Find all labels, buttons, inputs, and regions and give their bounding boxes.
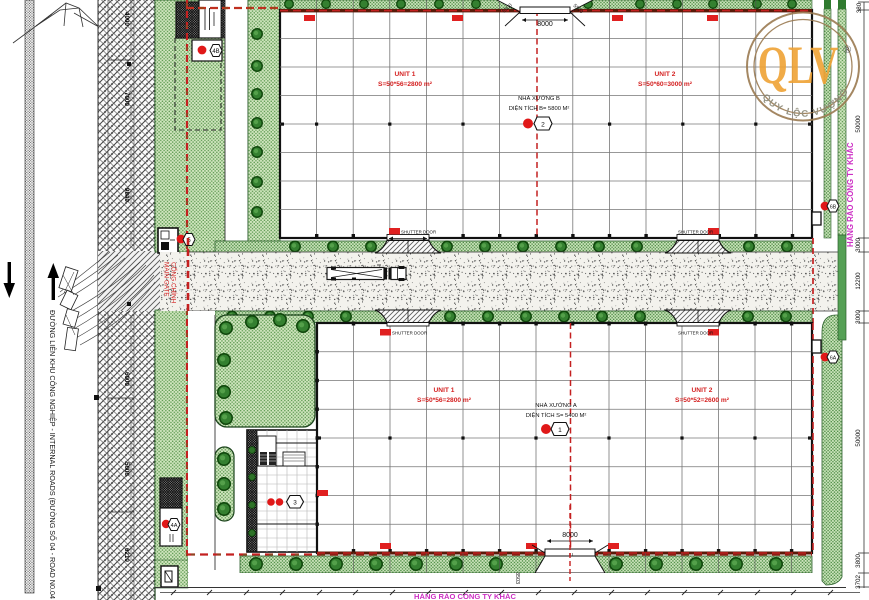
svg-text:50000: 50000 [855,429,862,447]
svg-text:4B: 4B [212,49,219,55]
svg-text:UNIT 1: UNIT 1 [395,71,416,78]
svg-text:HÀNG RÀO CÔNG TY KHÁC: HÀNG RÀO CÔNG TY KHÁC [846,142,855,247]
svg-text:®: ® [843,44,851,56]
svg-text:MAIN GATE: MAIN GATE [163,262,170,297]
svg-text:SHUTTER DOOR: SHUTTER DOOR [678,331,713,336]
svg-text:HÀNG RÀO CÔNG TY KHÁC: HÀNG RÀO CÔNG TY KHÁC [414,592,516,600]
svg-text:S=50*60=3000 m²: S=50*60=3000 m² [638,81,693,88]
svg-text:QLV: QLV [758,36,839,96]
svg-text:DIỆN TÍCH B= 5800 M²: DIỆN TÍCH B= 5800 M² [509,104,570,112]
svg-text:CỔNG CHÍNH: CỔNG CHÍNH [170,262,179,304]
svg-text:3: 3 [293,500,297,507]
svg-text:6210: 6210 [123,548,130,562]
svg-text:SHUTTER DOOR: SHUTTER DOOR [678,230,713,235]
svg-text:7000: 7000 [123,92,130,106]
svg-text:UNIT 2: UNIT 2 [692,387,713,394]
svg-text:5000: 5000 [123,462,130,476]
svg-text:3702: 3702 [855,575,862,589]
svg-text:NHÀ XƯỞNG B: NHÀ XƯỞNG B [518,95,560,102]
svg-text:S=50*56=2800 m²: S=50*56=2800 m² [417,397,472,404]
svg-text:3000: 3000 [855,238,862,252]
svg-text:DIỆN TÍCH S= 5400 M²: DIỆN TÍCH S= 5400 M² [526,411,587,419]
svg-text:SHUTTER DOOR: SHUTTER DOOR [401,230,436,235]
svg-text:UNIT 1: UNIT 1 [434,387,455,394]
svg-text:9840: 9840 [123,188,130,202]
svg-text:6B: 6B [830,205,837,211]
svg-text:S=50*52=2600 m²: S=50*52=2600 m² [675,397,730,404]
svg-text:6000: 6000 [123,372,130,386]
svg-text:1: 1 [558,427,562,434]
svg-text:3503: 3503 [514,572,520,584]
svg-text:ĐƯỜNG LIÊN KHU CÔNG NGHIỆP - I: ĐƯỜNG LIÊN KHU CÔNG NGHIỆP - INTERNAL RO… [48,310,58,599]
svg-text:3800: 3800 [855,554,862,568]
svg-text:2: 2 [541,122,545,129]
svg-text:50000: 50000 [855,115,862,133]
svg-text:SHUTTER DOOR: SHUTTER DOOR [392,331,427,336]
svg-text:6A: 6A [830,356,837,362]
svg-text:NHÀ XƯỞNG A: NHÀ XƯỞNG A [535,402,577,409]
svg-text:4A: 4A [171,523,178,529]
svg-text:3000: 3000 [855,310,862,324]
svg-text:12200: 12200 [855,272,862,290]
svg-text:8000: 8000 [537,21,553,28]
svg-text:4000: 4000 [123,12,130,26]
svg-text:UNIT 2: UNIT 2 [655,71,676,78]
svg-text:S=50*56=2800 m²: S=50*56=2800 m² [378,81,433,88]
svg-text:380: 380 [856,2,863,13]
